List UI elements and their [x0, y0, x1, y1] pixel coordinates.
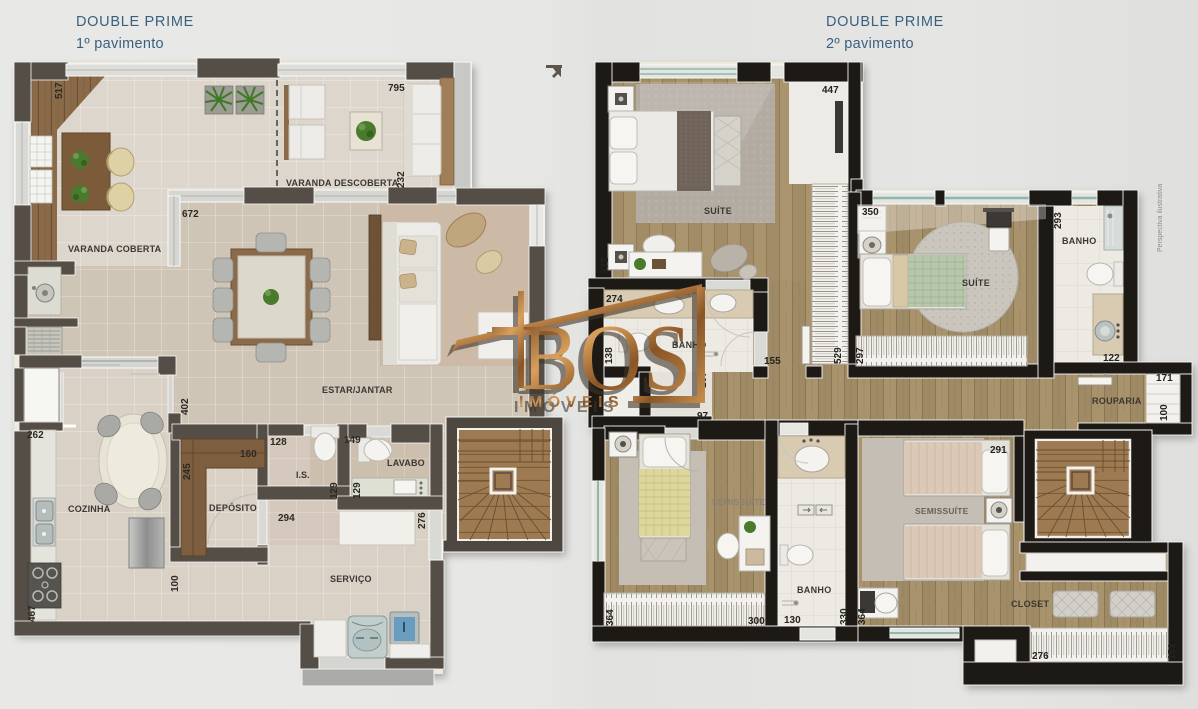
- svg-text:100: 100: [1159, 404, 1170, 421]
- svg-text:529: 529: [833, 347, 844, 364]
- svg-text:364: 364: [605, 609, 616, 626]
- svg-text:232: 232: [396, 171, 407, 188]
- svg-text:149: 149: [344, 435, 361, 446]
- svg-text:LAVABO: LAVABO: [387, 458, 425, 468]
- svg-text:SUÍTE: SUÍTE: [962, 278, 990, 288]
- svg-text:795: 795: [388, 83, 405, 94]
- svg-text:294: 294: [278, 513, 295, 524]
- svg-text:VARANDA COBERTA: VARANDA COBERTA: [68, 244, 162, 254]
- svg-text:VARANDA DESCOBERTA: VARANDA DESCOBERTA: [286, 178, 399, 188]
- svg-text:155: 155: [764, 356, 781, 367]
- svg-text:DOUBLE PRIME: DOUBLE PRIME: [76, 14, 194, 30]
- svg-text:297: 297: [855, 347, 866, 364]
- svg-text:BANHO: BANHO: [797, 585, 832, 595]
- svg-text:CLOSET: CLOSET: [1011, 599, 1050, 609]
- svg-text:447: 447: [822, 85, 839, 96]
- svg-text:97: 97: [697, 411, 709, 422]
- svg-text:2º pavimento: 2º pavimento: [826, 36, 914, 52]
- svg-text:330: 330: [839, 608, 850, 625]
- svg-text:129: 129: [352, 482, 363, 499]
- svg-text:672: 672: [182, 209, 199, 220]
- svg-text:276: 276: [1032, 651, 1049, 662]
- svg-text:372: 372: [600, 257, 611, 274]
- svg-text:517: 517: [54, 82, 65, 99]
- svg-text:151: 151: [1167, 643, 1178, 660]
- svg-text:364: 364: [857, 608, 868, 625]
- svg-text:ESTAR/JANTAR: ESTAR/JANTAR: [322, 385, 393, 395]
- svg-text:128: 128: [270, 437, 287, 448]
- svg-text:130: 130: [784, 615, 801, 626]
- svg-text:BANHO: BANHO: [1062, 236, 1097, 246]
- svg-text:Perspectiva ilustrativa: Perspectiva ilustrativa: [1157, 184, 1164, 252]
- svg-text:IMÓVEIS: IMÓVEIS: [519, 392, 624, 411]
- svg-text:300: 300: [748, 616, 765, 627]
- svg-text:SERVIÇO: SERVIÇO: [330, 574, 372, 584]
- svg-text:129: 129: [329, 482, 340, 499]
- svg-text:160: 160: [240, 449, 257, 460]
- svg-text:SEMISSUÍTE: SEMISSUÍTE: [712, 497, 766, 507]
- svg-text:ROUPARIA: ROUPARIA: [1092, 396, 1142, 406]
- svg-text:1º pavimento: 1º pavimento: [76, 36, 164, 52]
- svg-text:276: 276: [417, 512, 428, 529]
- svg-text:COZINHA: COZINHA: [68, 504, 111, 514]
- svg-text:SUÍTE: SUÍTE: [704, 206, 732, 216]
- svg-text:DOUBLE PRIME: DOUBLE PRIME: [826, 14, 944, 30]
- svg-text:I.S.: I.S.: [296, 470, 310, 480]
- svg-text:100: 100: [170, 575, 181, 592]
- svg-text:245: 245: [182, 463, 193, 480]
- svg-text:DEPÓSITO: DEPÓSITO: [209, 502, 257, 513]
- svg-text:171: 171: [1156, 373, 1173, 384]
- svg-text:262: 262: [27, 430, 44, 441]
- svg-text:SEMISSUÍTE: SEMISSUÍTE: [915, 506, 969, 516]
- svg-text:402: 402: [180, 398, 191, 415]
- svg-text:293: 293: [1053, 212, 1064, 229]
- svg-text:122: 122: [1103, 353, 1120, 364]
- svg-text:350: 350: [862, 207, 879, 218]
- svg-text:291: 291: [990, 445, 1007, 456]
- svg-text:467: 467: [27, 605, 38, 622]
